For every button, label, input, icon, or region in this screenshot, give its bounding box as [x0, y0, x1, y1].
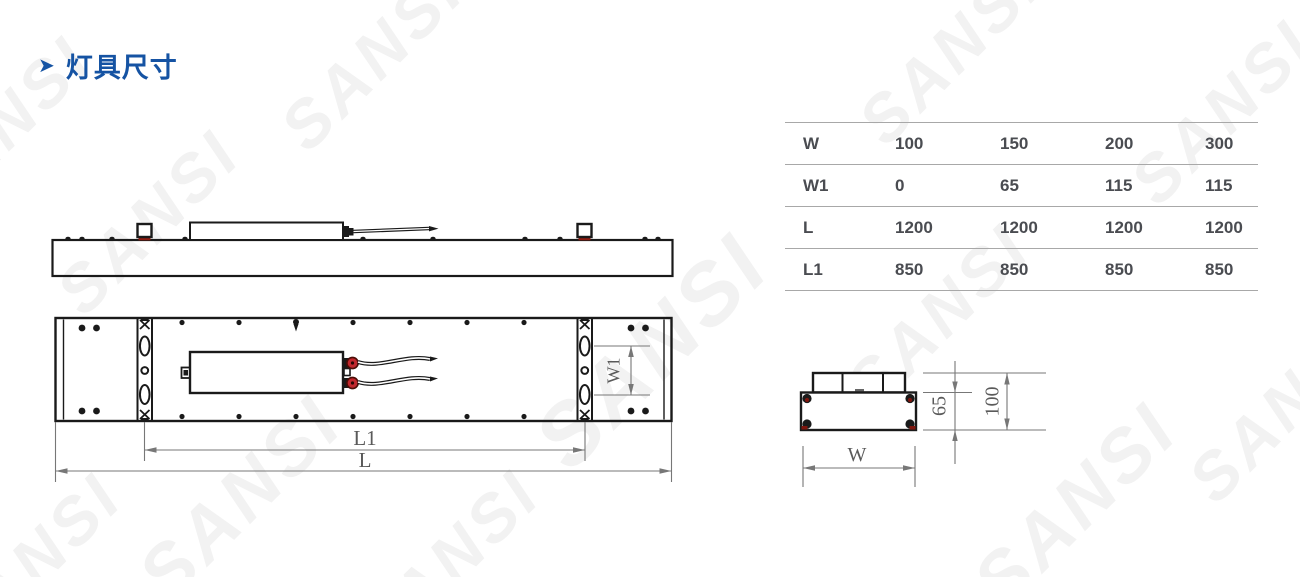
table-row: L 1200 1200 1200 1200 [785, 207, 1258, 249]
section-title: 灯具尺寸 [66, 46, 178, 85]
side-view-bracket-left [138, 224, 152, 240]
row-label: L [785, 218, 895, 238]
dimensions-table: W 100 150 200 300 W1 0 65 115 115 L 1200… [785, 122, 1258, 291]
table-cell: 200 [1105, 134, 1205, 154]
dim-label-65: 65 [929, 396, 951, 416]
table-cell: 1200 [1105, 218, 1205, 238]
plan-view-bracket-right [578, 318, 593, 421]
side-view-driver-box [190, 223, 439, 241]
plan-view-drawing: W1 L1 L [56, 318, 672, 482]
arrow-right-icon: ➤ [38, 56, 55, 76]
table-row: L1 850 850 850 850 [785, 249, 1258, 291]
table-cell: 115 [1105, 176, 1205, 196]
row-label: L1 [785, 260, 895, 280]
side-view-body [53, 240, 673, 276]
slot-hole [140, 385, 150, 404]
end-view-drawing: W 65 100 [801, 361, 1046, 487]
dim-65: 65 [929, 361, 958, 464]
table-cell: 850 [1205, 260, 1258, 280]
table-cell: 0 [895, 176, 1000, 196]
dim-label-100: 100 [982, 387, 1004, 417]
section-header: ➤ 灯具尺寸 [38, 46, 178, 85]
cable-connector [343, 226, 349, 237]
row-label: W1 [785, 176, 895, 196]
table-cell: 850 [1105, 260, 1205, 280]
dim-label-w1: W1 [603, 358, 623, 384]
dim-w1: W1 [594, 346, 650, 395]
dim-100: 100 [982, 373, 1010, 430]
dim-w: W [803, 444, 915, 487]
table-cell: 150 [1000, 134, 1105, 154]
slot-hole [580, 385, 590, 404]
plan-view-bracket-left [138, 318, 153, 421]
table-row: W1 0 65 115 115 [785, 165, 1258, 207]
table-cell: 300 [1205, 134, 1258, 154]
table-cell: 850 [1000, 260, 1105, 280]
screw-hole [141, 367, 148, 374]
row-label: W [785, 134, 895, 154]
plan-view-corner-screws [79, 325, 649, 415]
table-cell: 850 [895, 260, 1000, 280]
slot-hole [580, 337, 590, 356]
screw-hole [581, 367, 588, 374]
page: SANSI SANSI SANSI SANSI SANSI SANSI SANS… [0, 0, 1300, 577]
side-view-bracket-right [578, 224, 592, 240]
table-cell: 100 [895, 134, 1000, 154]
table-cell: 1200 [1205, 218, 1258, 238]
end-view-driver-box [813, 373, 905, 393]
slot-hole [140, 337, 150, 356]
table-cell: 1200 [1000, 218, 1105, 238]
table-cell: 115 [1205, 176, 1258, 196]
end-view-body [801, 393, 916, 431]
dim-label-l1: L1 [353, 426, 376, 450]
plan-view-driver-box [182, 352, 439, 393]
table-cell: 1200 [895, 218, 1000, 238]
dim-label-w: W [848, 444, 867, 466]
dim-label-l: L [359, 448, 372, 472]
table-row: W 100 150 200 300 [785, 123, 1258, 165]
table-cell: 65 [1000, 176, 1105, 196]
side-view-drawing [53, 223, 673, 277]
